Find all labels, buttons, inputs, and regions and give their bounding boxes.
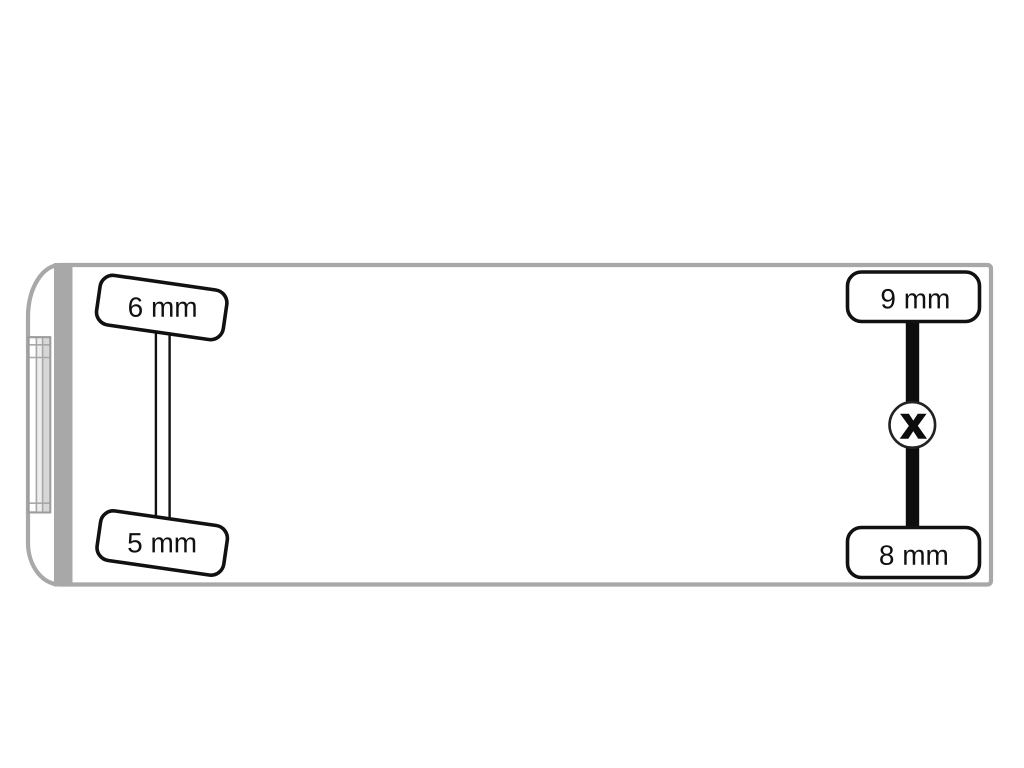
svg-text:9 mm: 9 mm	[880, 283, 950, 314]
svg-text:8 mm: 8 mm	[879, 540, 949, 571]
svg-text:x: x	[901, 399, 926, 448]
svg-text:6 mm: 6 mm	[128, 292, 198, 323]
svg-text:5 mm: 5 mm	[127, 527, 197, 558]
